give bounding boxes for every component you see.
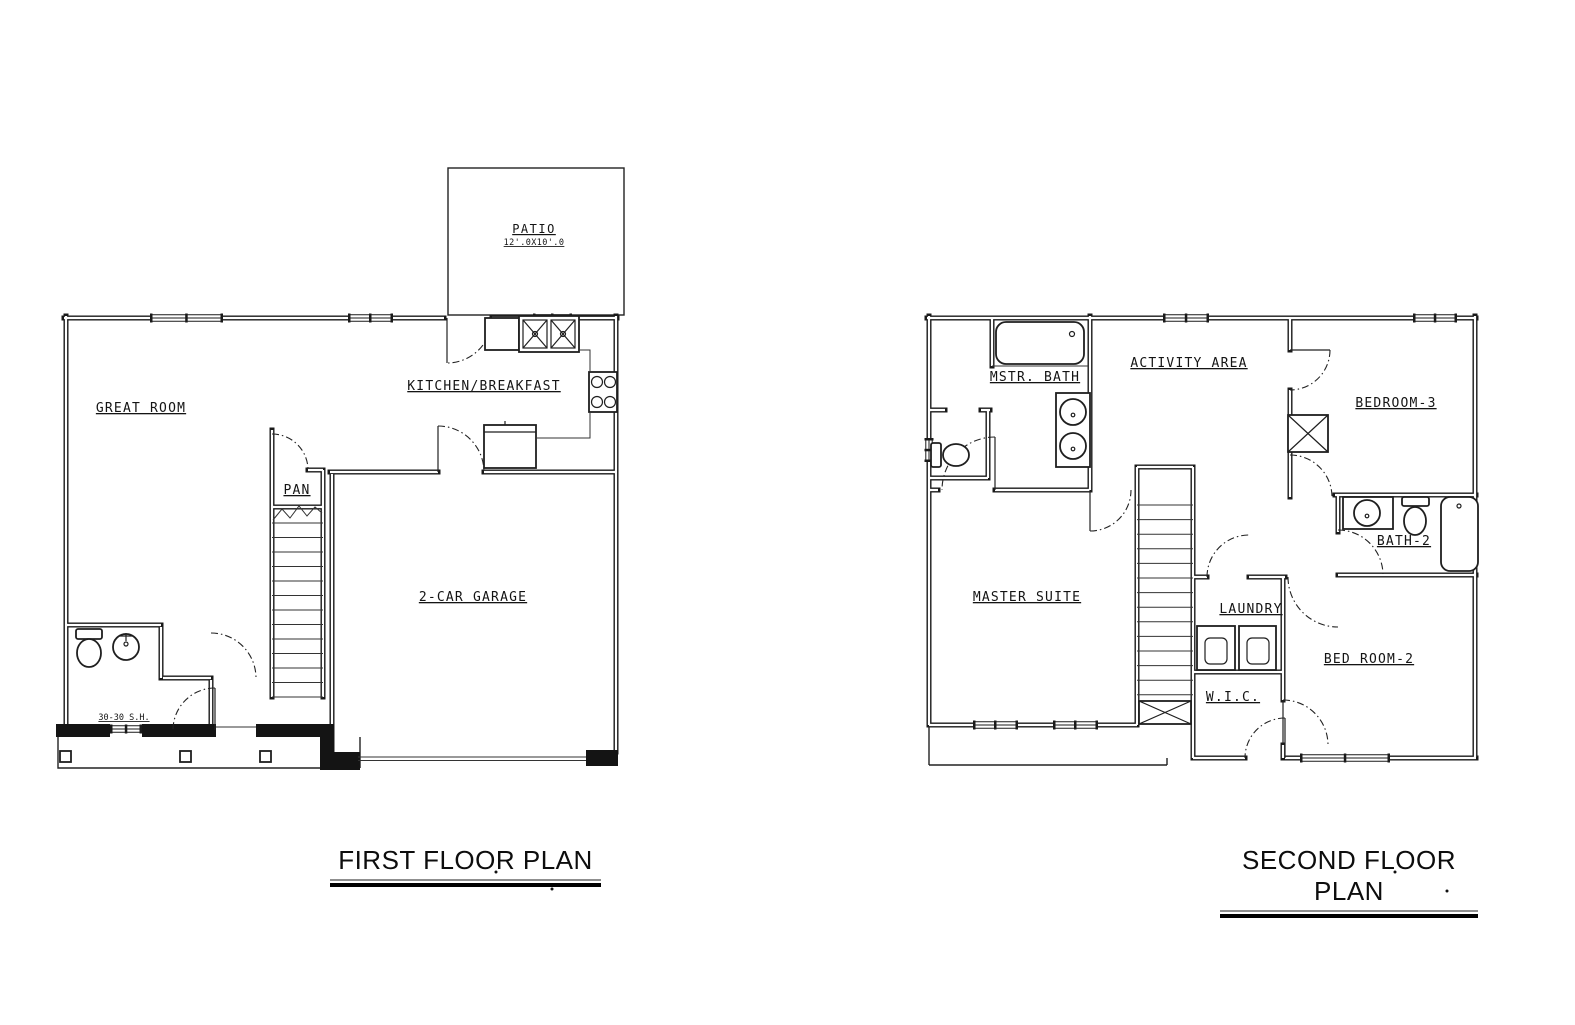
toilet-icon bbox=[1402, 497, 1429, 535]
floor-plan-sheet: PATIO 12'.0X10'.0 bbox=[0, 0, 1575, 1025]
first-floor-stairs bbox=[272, 506, 323, 697]
counter bbox=[485, 318, 519, 350]
patio-label: PATIO bbox=[512, 222, 556, 236]
label-front-window: 30-30 S.H. bbox=[98, 713, 149, 723]
title-underline-thick bbox=[1220, 914, 1478, 918]
second-floor-plan: MSTR. BATH ACTIVITY AREA BEDROOM-3 BATH-… bbox=[925, 314, 1479, 766]
label-garage: 2-CAR GARAGE bbox=[419, 590, 527, 605]
patio-outline: PATIO 12'.0X10'.0 bbox=[448, 168, 624, 315]
second-floor-title: SECOND FLOOR PLAN bbox=[1220, 845, 1478, 907]
second-floor-stairs bbox=[1137, 505, 1193, 724]
refrigerator-icon bbox=[484, 421, 536, 468]
bedroom2-door-swing bbox=[1288, 577, 1338, 627]
window bbox=[973, 721, 1018, 730]
first-floor-title-block: FIRST FLOOR PLAN bbox=[330, 845, 601, 887]
second-floor-doors bbox=[942, 350, 1383, 758]
first-floor-plan: PATIO 12'.0X10'.0 bbox=[56, 168, 624, 770]
bathtub-icon bbox=[1441, 497, 1478, 571]
master-suite-door-swing bbox=[1090, 490, 1131, 531]
label-bedroom-3: BEDROOM-3 bbox=[1355, 396, 1436, 411]
label-laundry: LAUNDRY bbox=[1219, 602, 1282, 617]
garage-door-swing bbox=[438, 426, 484, 472]
powder-door-swing bbox=[211, 633, 256, 678]
window bbox=[1163, 314, 1209, 323]
sink-icon bbox=[113, 633, 139, 660]
title-underline-thin bbox=[330, 879, 601, 881]
patio-size-label: 12'.0X10'.0 bbox=[504, 238, 565, 248]
porch-post bbox=[260, 751, 271, 762]
washer-icon bbox=[1197, 626, 1235, 670]
bedroom2-entry-door-swing bbox=[1283, 700, 1328, 745]
bedroom3-closet bbox=[1288, 415, 1328, 452]
bathtub-icon bbox=[996, 322, 1084, 364]
window bbox=[150, 314, 223, 323]
label-master-suite: MASTER SUITE bbox=[973, 590, 1081, 605]
dryer-icon bbox=[1239, 626, 1276, 670]
window bbox=[1413, 314, 1457, 323]
garage-door bbox=[358, 757, 586, 761]
double-sink-icon bbox=[519, 316, 579, 352]
bedroom3-door-swing bbox=[1290, 455, 1332, 497]
label-bath-2: BATH-2 bbox=[1377, 534, 1431, 549]
label-great-room: GREAT ROOM bbox=[96, 401, 186, 416]
label-bedroom-2: BED ROOM-2 bbox=[1324, 652, 1414, 667]
porch-post bbox=[60, 751, 71, 762]
window-30-30-sh bbox=[110, 725, 142, 734]
toilet-icon bbox=[76, 629, 102, 667]
title-underline-thin bbox=[1220, 910, 1478, 912]
title-underline-thick bbox=[330, 883, 601, 887]
label-kitchen: KITCHEN/BREAKFAST bbox=[407, 379, 560, 394]
pantry-door-swing bbox=[272, 434, 308, 470]
double-vanity-icon bbox=[1056, 393, 1090, 467]
wic-door-swing bbox=[1245, 718, 1285, 758]
porch-post bbox=[180, 751, 191, 762]
first-floor-title: FIRST FLOOR PLAN bbox=[330, 845, 601, 876]
laundry-door-swing bbox=[1207, 535, 1249, 577]
window bbox=[1053, 721, 1098, 730]
window bbox=[1300, 754, 1390, 763]
second-floor-title-block: SECOND FLOOR PLAN bbox=[1220, 845, 1478, 918]
label-master-bath: MSTR. BATH bbox=[990, 370, 1080, 385]
label-wic: W.I.C. bbox=[1206, 690, 1260, 705]
label-pantry: PAN bbox=[283, 483, 310, 498]
laundry-fixtures bbox=[1197, 626, 1276, 670]
roof-below-outline bbox=[929, 726, 1167, 765]
toilet-icon bbox=[931, 443, 969, 467]
label-activity-area: ACTIVITY AREA bbox=[1130, 356, 1247, 371]
window bbox=[348, 314, 393, 323]
range-icon bbox=[589, 372, 617, 412]
powder-room-fixtures bbox=[76, 629, 139, 667]
bedroom3-closet-door-swing bbox=[1290, 350, 1330, 390]
first-floor-windows bbox=[110, 314, 572, 734]
vanity-sink-icon bbox=[1343, 497, 1393, 529]
master-bath-fixtures bbox=[931, 322, 1090, 467]
stair-landing-closet bbox=[1139, 701, 1191, 724]
